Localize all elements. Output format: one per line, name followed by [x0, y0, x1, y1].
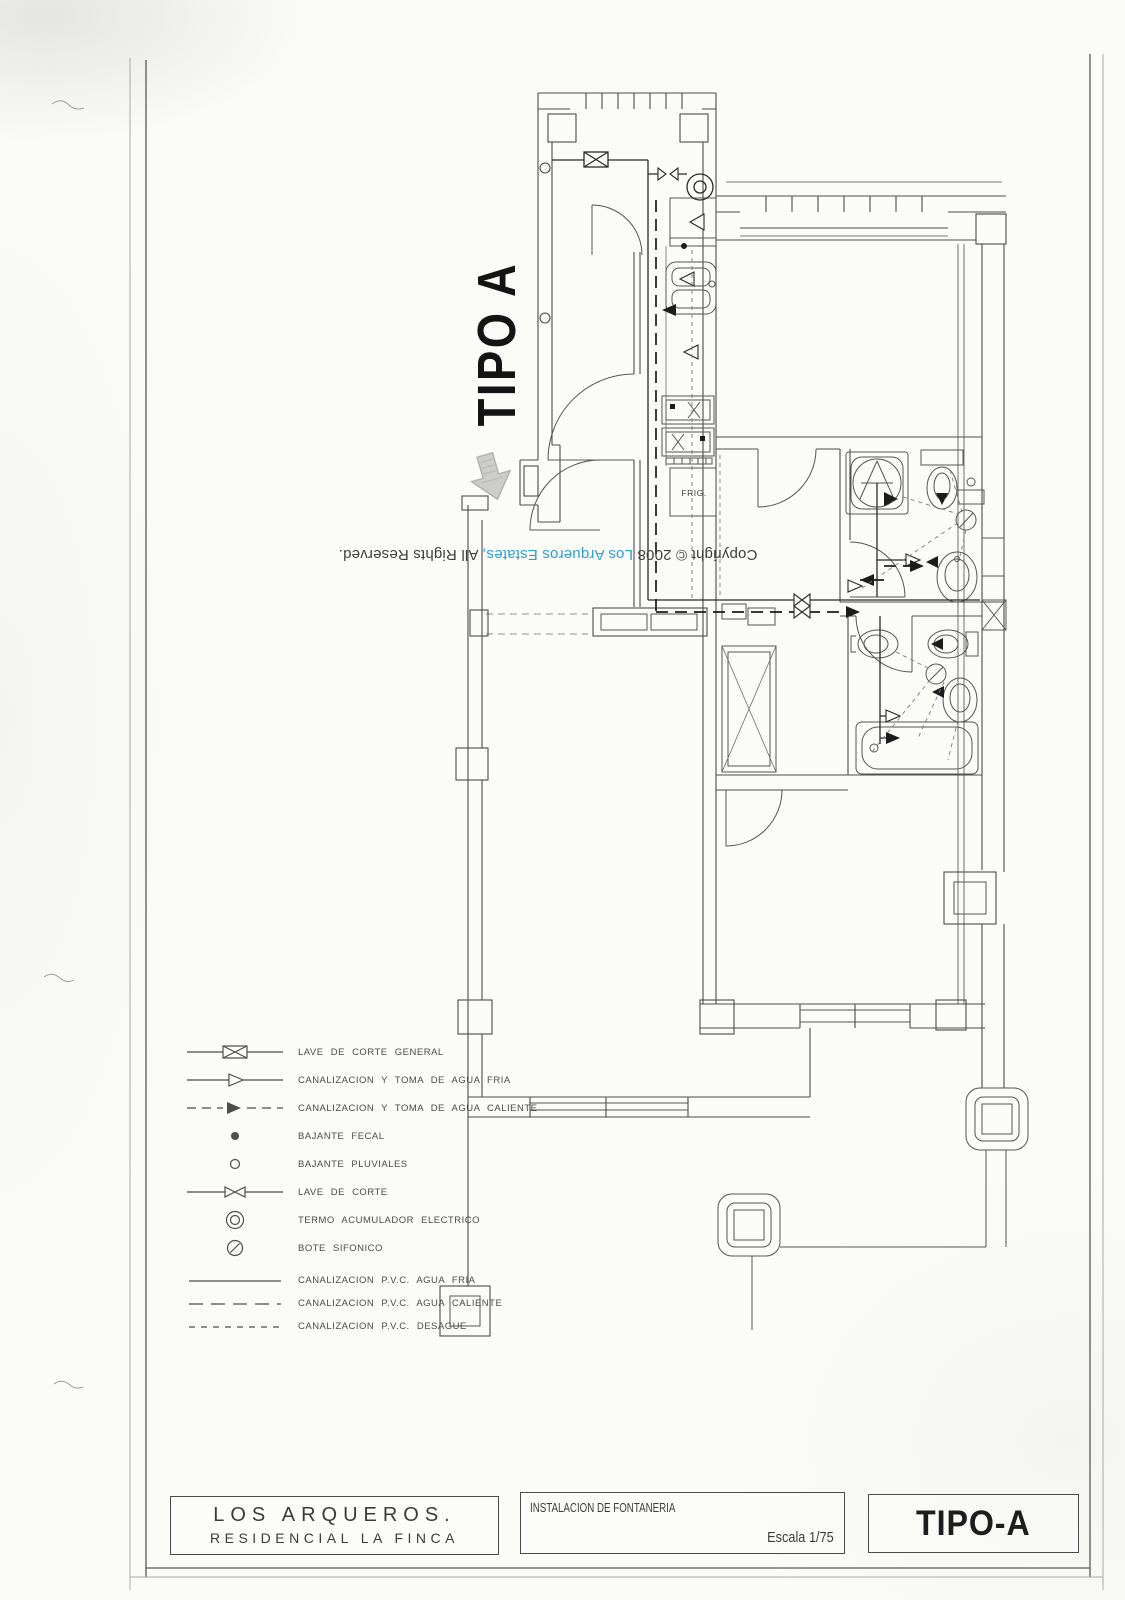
- scanned-drawing-sheet: FRIG.: [0, 0, 1125, 1600]
- pvc-drain-line-icon: [185, 1317, 285, 1337]
- hall-details: [722, 604, 776, 772]
- general-shutoff-valve-icon: [185, 1042, 285, 1062]
- legend-item: CANALIZACION P.V.C. DESAGUE: [185, 1315, 538, 1338]
- fridge-label: FRIG.: [681, 488, 706, 498]
- shutoff-valve-icon: [185, 1182, 285, 1202]
- legend: LAVE DE CORTE GENERAL CANALIZACION Y TOM…: [185, 1038, 538, 1338]
- cold-water-piping: [552, 152, 980, 744]
- hot-water-supply-icon: [185, 1098, 285, 1118]
- bathroom1: [840, 449, 977, 602]
- copyright-company: Los Arqueros Estates,: [482, 546, 633, 563]
- floor-plan-drawing: FRIG.: [0, 0, 1125, 1600]
- pvc-hot-water-line-icon: [185, 1294, 285, 1314]
- title-block-drawing: INSTALACION DE FONTANERIA Escala 1/75: [520, 1492, 845, 1554]
- tipo-a-vertical-label: TIPO A: [466, 262, 528, 427]
- legend-item-label: LAVE DE CORTE: [298, 1187, 388, 1198]
- legend-item-label: LAVE DE CORTE GENERAL: [298, 1047, 444, 1058]
- tipo-direction-arrow-icon: [452, 448, 532, 512]
- legend-item: TERMO ACUMULADOR ELECTRICO: [185, 1206, 538, 1234]
- pvc-cold-water-line-icon: [185, 1271, 285, 1291]
- sheet-border: [130, 54, 1103, 1590]
- legend-item-label: CANALIZACION Y TOMA DE AGUA FRIA: [298, 1075, 511, 1086]
- legend-item-label: CANALIZACION P.V.C. AGUA FRIA: [298, 1275, 476, 1286]
- bedroom1-door: [758, 449, 816, 507]
- legend-item-label: CANALIZACION Y TOMA DE AGUA CALIENTE: [298, 1103, 538, 1114]
- type-label: TIPO-A: [916, 1504, 1031, 1544]
- soil-downpipe-icon: [185, 1126, 285, 1146]
- legend-item-label: CANALIZACION P.V.C. DESAGUE: [298, 1321, 467, 1332]
- legend-item-label: BAJANTE FECAL: [298, 1131, 385, 1142]
- entry-doors: [530, 205, 642, 530]
- electric-water-heater-icon: [185, 1210, 285, 1230]
- cold-water-supply-icon: [185, 1070, 285, 1090]
- legend-item: LAVE DE CORTE: [185, 1178, 538, 1206]
- copyright-suffix: All Rights Reserved.: [339, 546, 482, 563]
- rainwater-downpipe-icon: [185, 1154, 285, 1174]
- scan-artifacts: [44, 101, 84, 1388]
- legend-item: BOTE SIFONICO: [185, 1234, 538, 1262]
- legend-item-label: CANALIZACION P.V.C. AGUA CALIENTE: [298, 1298, 502, 1309]
- legend-item: CANALIZACION P.V.C. AGUA CALIENTE: [185, 1292, 538, 1315]
- bathroom-divider-shaft: [840, 478, 1006, 630]
- copyright-line: Copyright © 2008 Los Arqueros Estates, A…: [330, 546, 766, 563]
- copyright-prefix: Copyright © 2008: [633, 546, 758, 563]
- legend-item: BAJANTE FECAL: [185, 1122, 538, 1150]
- legend-item: CANALIZACION P.V.C. AGUA FRIA: [185, 1269, 538, 1292]
- project-name: LOS ARQUEROS.: [171, 1504, 498, 1527]
- legend-item: CANALIZACION Y TOMA DE AGUA CALIENTE: [185, 1094, 538, 1122]
- legend-item-label: TERMO ACUMULADOR ELECTRICO: [298, 1215, 480, 1226]
- legend-item: BAJANTE PLUVIALES: [185, 1150, 538, 1178]
- kitchen-fixtures: FRIG.: [662, 198, 716, 516]
- legend-item-label: BAJANTE PLUVIALES: [298, 1159, 408, 1170]
- bedroom2-walls: [700, 775, 1004, 1088]
- bathroom2: [716, 616, 982, 790]
- terrace-columns: [718, 1088, 1028, 1330]
- drawing-title: INSTALACION DE FONTANERIA: [530, 1501, 675, 1515]
- drawing-scale: Escala 1/75: [767, 1530, 834, 1546]
- project-subtitle: RESIDENCIAL LA FINCA: [171, 1530, 498, 1546]
- siphon-trap-icon: [185, 1238, 285, 1258]
- bedroom1-walls: [716, 182, 1006, 1004]
- legend-item: LAVE DE CORTE GENERAL: [185, 1038, 538, 1066]
- title-block-project: LOS ARQUEROS. RESIDENCIAL LA FINCA: [170, 1496, 499, 1555]
- drain-piping: [692, 250, 966, 760]
- title-block-type: TIPO-A: [868, 1494, 1079, 1553]
- legend-item-label: BOTE SIFONICO: [298, 1243, 383, 1254]
- legend-item: CANALIZACION Y TOMA DE AGUA FRIA: [185, 1066, 538, 1094]
